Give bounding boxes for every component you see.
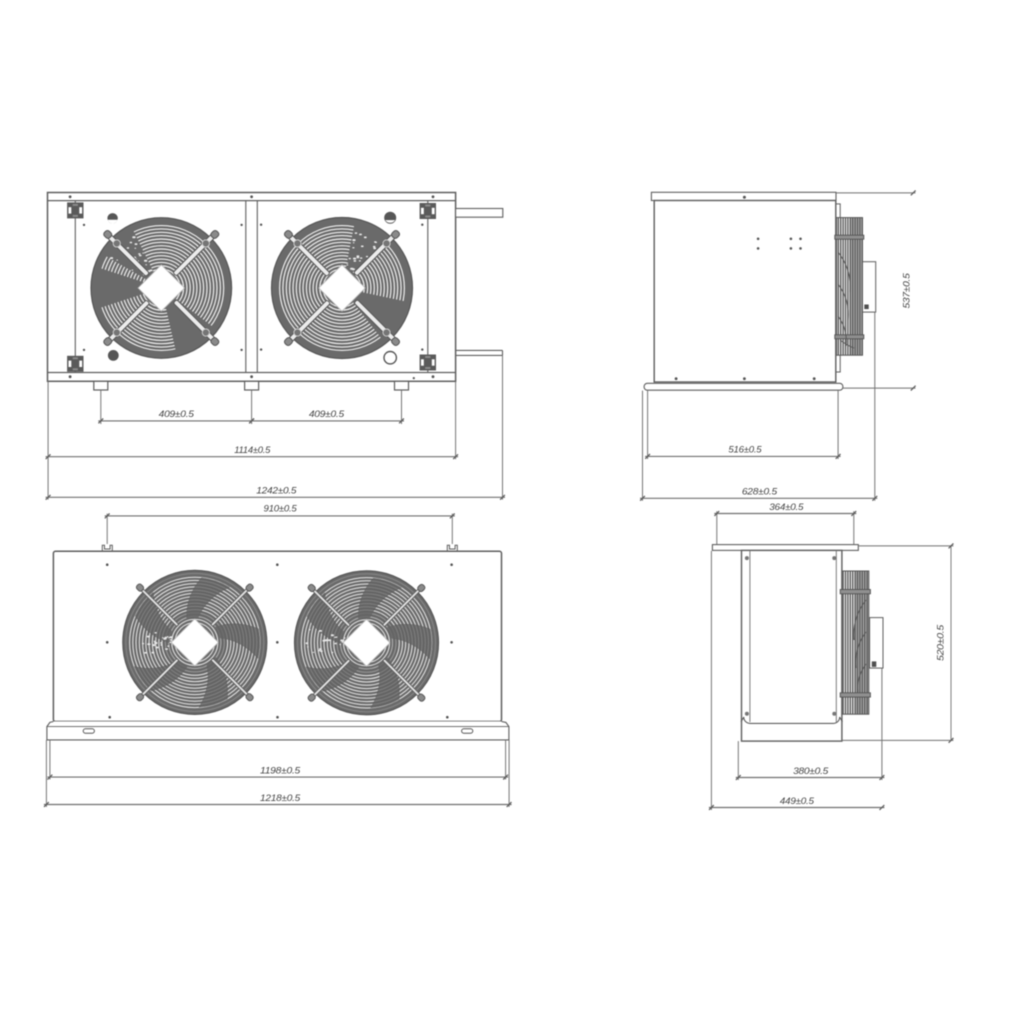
svg-text:537±0.5: 537±0.5 xyxy=(902,273,913,309)
svg-text:628±0.5: 628±0.5 xyxy=(742,487,778,498)
svg-text:1198±0.5: 1198±0.5 xyxy=(260,765,301,776)
svg-text:520±0.5: 520±0.5 xyxy=(936,624,947,661)
svg-text:516±0.5: 516±0.5 xyxy=(728,445,762,456)
svg-text:409±0.5: 409±0.5 xyxy=(159,409,195,420)
svg-text:1242±0.5: 1242±0.5 xyxy=(256,486,297,497)
svg-text:1114±0.5: 1114±0.5 xyxy=(234,445,271,456)
svg-text:380±0.5: 380±0.5 xyxy=(793,766,829,777)
svg-text:1218±0.5: 1218±0.5 xyxy=(260,793,301,804)
svg-text:910±0.5: 910±0.5 xyxy=(264,503,298,514)
svg-text:409±0.5: 409±0.5 xyxy=(309,409,345,420)
svg-text:449±0.5: 449±0.5 xyxy=(780,796,815,807)
svg-text:364±0.5: 364±0.5 xyxy=(769,502,804,513)
